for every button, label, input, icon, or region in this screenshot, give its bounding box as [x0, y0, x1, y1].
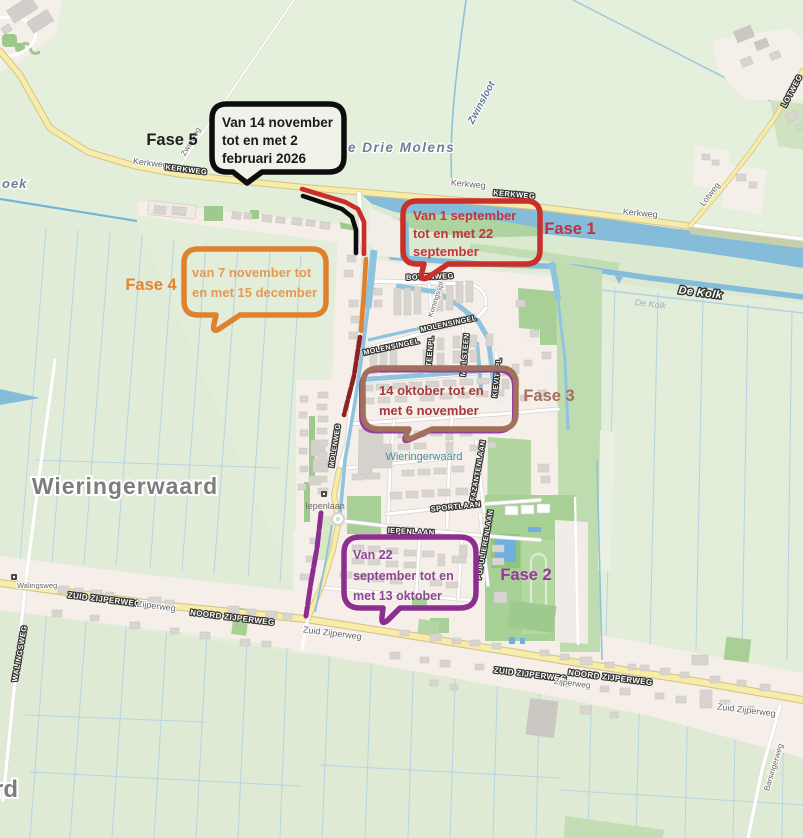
svg-text:Wieringerwaard: Wieringerwaard [385, 451, 462, 463]
svg-text:Van 14 november: Van 14 november [222, 115, 334, 130]
svg-text:Fase 2: Fase 2 [500, 566, 551, 584]
svg-text:Van 1 september: Van 1 september [413, 208, 516, 223]
svg-text:met 6 november: met 6 november [379, 403, 479, 418]
svg-text:Fase 5: Fase 5 [146, 131, 197, 149]
svg-text:tot en met 2: tot en met 2 [222, 133, 298, 148]
svg-text:Wieringerwaard: Wieringerwaard [32, 473, 218, 499]
svg-text:Fase 3: Fase 3 [523, 387, 574, 405]
svg-text:februari 2026: februari 2026 [222, 151, 307, 166]
svg-text:Van 22: Van 22 [353, 548, 393, 562]
svg-text:met 13 oktober: met 13 oktober [353, 589, 442, 603]
svg-text:september tot en: september tot en [353, 569, 454, 583]
svg-text:oek: oek [2, 176, 27, 191]
svg-text:van 7 november tot: van 7 november tot [192, 265, 312, 280]
svg-text:september: september [413, 244, 479, 259]
svg-text:Fase 1: Fase 1 [544, 220, 595, 238]
svg-text:tot en met 22: tot en met 22 [413, 226, 493, 241]
svg-text:en met 15 december: en met 15 december [192, 285, 317, 300]
svg-text:Fase 4: Fase 4 [125, 276, 177, 294]
svg-text:Walingsweg: Walingsweg [17, 581, 57, 590]
svg-text:De Drie Molens: De Drie Molens [337, 140, 456, 155]
svg-text:rd: rd [0, 776, 18, 803]
svg-text:14 oktober tot en: 14 oktober tot en [379, 383, 484, 398]
svg-text:Iepenlaan: Iepenlaan [305, 501, 345, 511]
